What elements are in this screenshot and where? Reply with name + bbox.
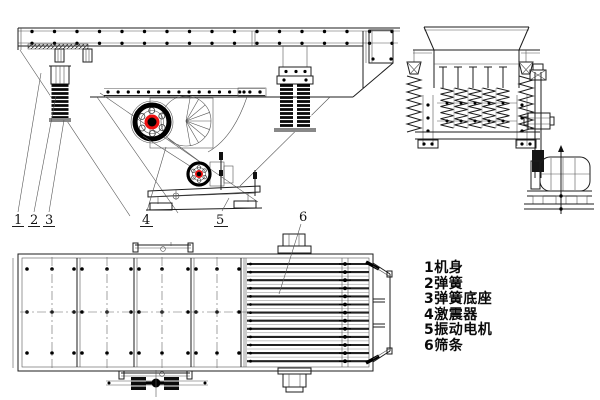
- callout-6: 6: [299, 210, 307, 225]
- callouts-side: 1 2 3 4 5: [12, 73, 229, 228]
- side-view: 1 2 3 4 5: [12, 28, 400, 228]
- deck-post: [55, 49, 64, 62]
- legend: 1机身 2弹簧 3弹簧底座 4激震器 5振动电机 6筛条: [424, 261, 492, 354]
- plan-view: [13, 234, 392, 397]
- coil-spring: [50, 84, 70, 120]
- hopper: [413, 27, 540, 88]
- drawing-canvas: 1 2 3 4 5: [0, 0, 600, 400]
- outer-spring-right: [519, 50, 533, 132]
- exciter-wheel: [131, 96, 213, 148]
- outer-spring-left: [407, 50, 421, 132]
- legend-item-exciter: 4激震器: [424, 308, 492, 324]
- spring-bank: [437, 88, 517, 128]
- trough-body: [18, 28, 400, 88]
- spring-mount-bottom-left: [119, 371, 192, 379]
- screen-bars: [246, 258, 392, 367]
- spring-seat: [49, 118, 71, 122]
- legend-item-vibration-motor: 5振动电机: [424, 323, 492, 339]
- spring-mount-bottom-right: [278, 368, 311, 392]
- feeder-drawing: 1 2 3 4 5: [0, 0, 600, 400]
- callout-5: 5: [216, 213, 224, 228]
- spring-mount-top-left: [133, 242, 193, 252]
- coil-spring: [296, 84, 312, 129]
- legend-item-spring-base: 3弹簧底座: [424, 292, 492, 308]
- end-view: [407, 27, 594, 214]
- exciter-shaft: [148, 118, 157, 127]
- callout-1: 1: [14, 213, 22, 228]
- callout-3: 3: [45, 213, 53, 228]
- legend-item-screen-bars: 6筛条: [424, 339, 492, 355]
- discharge-extension: [373, 263, 392, 362]
- frame-lines: [20, 50, 353, 216]
- motor-base: [146, 186, 262, 210]
- legend-item-spring: 2弹簧: [424, 277, 492, 293]
- spring-seat: [274, 128, 316, 132]
- vibration-motor-side: [146, 152, 262, 210]
- callout-2: 2: [30, 213, 38, 228]
- discharge-box: [353, 30, 393, 97]
- coil-spring: [279, 84, 295, 129]
- callout-6-group: 6: [279, 210, 307, 294]
- right-spring-assembly: [274, 46, 316, 132]
- deck-post: [83, 49, 92, 62]
- motor-plan-view: [106, 370, 208, 397]
- callout-4: 4: [142, 213, 150, 228]
- legend-item-body: 1机身: [424, 261, 492, 277]
- liner-hatch: [28, 44, 88, 49]
- left-spring-assembly: [49, 66, 71, 122]
- spring-mount-top-right: [278, 234, 311, 253]
